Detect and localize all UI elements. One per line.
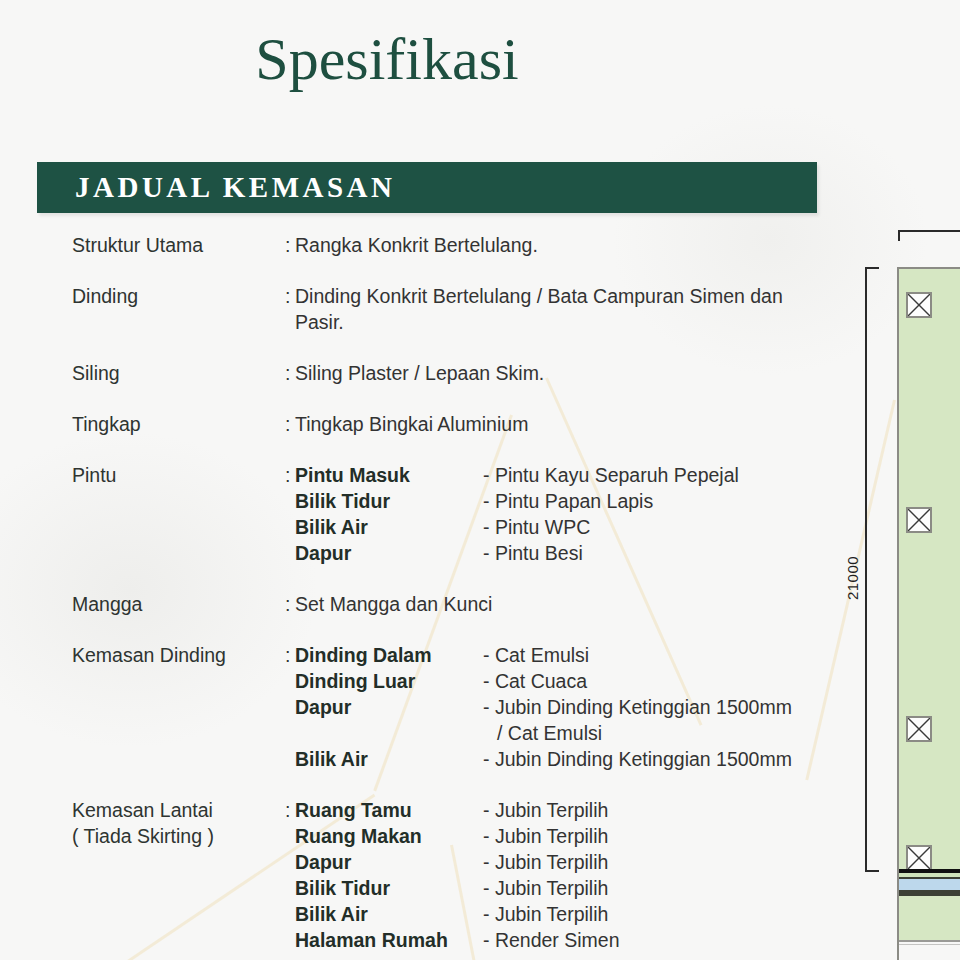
colon: : (285, 232, 290, 258)
spec-sub-label: Bilik Tidur (295, 875, 483, 901)
spec-sub-value: - Jubin Dinding Ketinggian 1500mm (483, 746, 832, 772)
spec-value-text: Rangka Konkrit Bertelulang. (295, 234, 538, 256)
colon: : (285, 591, 290, 617)
spec-sub-label: Dapur (295, 540, 483, 566)
spec-row-mangga: Mangga : Set Mangga dan Kunci (72, 591, 832, 617)
plan-dimension-line-top (898, 230, 960, 232)
spec-sub-value: - Pintu WPC (483, 514, 832, 540)
spec-sub-value: - Jubin Terpilih (483, 849, 832, 875)
spec-label: Kemasan Dinding (72, 642, 285, 668)
plan-drain-strip (899, 879, 960, 890)
spec-row-dinding: Dinding : Dinding Konkrit Bertelulang / … (72, 283, 832, 335)
spec-sub-value: - Jubin Dinding Ketinggian 1500mm (483, 694, 832, 720)
spec-label: Pintu (72, 462, 285, 488)
spec-sub-label: Pintu Masuk (295, 462, 483, 488)
column-symbol-icon (906, 845, 932, 871)
plan-verge-strip (899, 896, 960, 940)
spec-group-kemasan-dinding: Kemasan Dinding : Dinding Dalam Dinding … (72, 642, 832, 772)
plan-road-edge (897, 944, 960, 945)
column-symbol-icon (906, 507, 932, 533)
spec-label: Mangga (72, 591, 285, 617)
spec-sub-label: Dapur (295, 849, 483, 875)
spec-sub-value: - Cat Cuaca (483, 668, 832, 694)
colon: : (285, 411, 290, 437)
spec-value-text: Siling Plaster / Lepaan Skim. (295, 362, 544, 384)
plan-dimension-tick (898, 230, 900, 241)
spec-sub-value: - Pintu Besi (483, 540, 832, 566)
spec-value-text: Tingkap Bingkai Aluminium (295, 413, 528, 435)
spec-row-tingkap: Tingkap : Tingkap Bingkai Aluminium (72, 411, 832, 437)
spec-value: : Siling Plaster / Lepaan Skim. (285, 360, 544, 386)
spec-sub-value: - Pintu Kayu Separuh Pepejal (483, 462, 832, 488)
colon: : (285, 797, 290, 823)
colon: : (285, 642, 290, 668)
spec-label: Siling (72, 360, 285, 386)
spec-sub-label: Bilik Air (295, 514, 483, 540)
spec-row-siling: Siling : Siling Plaster / Lepaan Skim. (72, 360, 832, 386)
colon: : (285, 462, 290, 488)
plan-border (897, 869, 899, 960)
spec-sub-value: - Jubin Terpilih (483, 823, 832, 849)
schedule-table: Struktur Utama : Rangka Konkrit Bertelul… (72, 232, 832, 960)
spec-value: : Tingkap Bingkai Aluminium (285, 411, 528, 437)
plan-dimension-label: 21000 (844, 556, 861, 600)
spec-sub-label: Halaman Rumah (295, 927, 483, 953)
spec-value: : Set Mangga dan Kunci (285, 591, 492, 617)
spec-sub-value: - Pintu Papan Lapis (483, 488, 832, 514)
colon: : (285, 283, 290, 309)
spec-value-text: Set Mangga dan Kunci (295, 593, 492, 615)
spec-sub-label: Bilik Air (295, 746, 483, 772)
plan-plot-area (897, 267, 960, 869)
spec-label-note: ( Tiada Skirting ) (72, 823, 285, 849)
colon: : (285, 360, 290, 386)
spec-sub-labels: : Pintu Masuk Bilik Tidur Bilik Air Dapu… (285, 462, 483, 566)
spec-sub-value: - Jubin Terpilih (483, 875, 832, 901)
page-title: Spesifikasi (0, 18, 774, 100)
spec-sub-value: - Jubin Terpilih (483, 797, 832, 823)
plan-dimension-line-vertical (865, 267, 867, 872)
spec-sub-label: Bilik Air (295, 901, 483, 927)
spec-sub-value: - Jubin Terpilih (483, 901, 832, 927)
spec-label: Struktur Utama (72, 232, 285, 258)
spec-value: : Dinding Konkrit Bertelulang / Bata Cam… (285, 283, 832, 335)
spec-sub-labels: : Dinding Dalam Dinding Luar Dapur Bilik… (285, 642, 483, 772)
spec-sub-label: Dinding Dalam (295, 642, 483, 668)
spec-label-line: Kemasan Lantai (72, 797, 285, 823)
spec-sub-label: Dapur (295, 694, 483, 720)
section-header-text: JADUAL KEMASAN (75, 171, 396, 203)
spec-sub-label: Ruang Makan (295, 823, 483, 849)
spec-sub-value: - Render Simen (483, 927, 832, 953)
spec-sub-label (295, 720, 483, 746)
column-symbol-icon (906, 716, 932, 742)
spec-group-kemasan-lantai: Kemasan Lantai ( Tiada Skirting ) : Ruan… (72, 797, 832, 953)
spec-label: Tingkap (72, 411, 285, 437)
plan-road-edge (897, 940, 960, 942)
spec-sub-label: Ruang Tamu (295, 797, 483, 823)
spec-label: Kemasan Lantai ( Tiada Skirting ) (72, 797, 285, 849)
spec-label: Dinding (72, 283, 285, 309)
spec-sub-value-wrap: / Cat Emulsi (483, 720, 832, 746)
spec-sub-labels: : Ruang Tamu Ruang Makan Dapur Bilik Tid… (285, 797, 483, 953)
plan-dimension-tick (865, 870, 879, 872)
plan-dimension-tick (865, 267, 879, 269)
section-header-bar: JADUAL KEMASAN (37, 162, 817, 213)
spec-sub-values: - Jubin Terpilih - Jubin Terpilih - Jubi… (483, 797, 832, 953)
spec-sub-label: Dinding Luar (295, 668, 483, 694)
spec-value: : Rangka Konkrit Bertelulang. (285, 232, 538, 258)
spec-row-struktur-utama: Struktur Utama : Rangka Konkrit Bertelul… (72, 232, 832, 258)
spec-sub-value: - Cat Emulsi (483, 642, 832, 668)
spec-group-pintu: Pintu : Pintu Masuk Bilik Tidur Bilik Ai… (72, 462, 832, 566)
spec-sub-values: - Cat Emulsi - Cat Cuaca - Jubin Dinding… (483, 642, 832, 772)
spec-sub-label: Bilik Tidur (295, 488, 483, 514)
spec-sub-values: - Pintu Kayu Separuh Pepejal - Pintu Pap… (483, 462, 832, 566)
column-symbol-icon (906, 292, 932, 318)
spec-value-text: Dinding Konkrit Bertelulang / Bata Campu… (295, 285, 783, 333)
